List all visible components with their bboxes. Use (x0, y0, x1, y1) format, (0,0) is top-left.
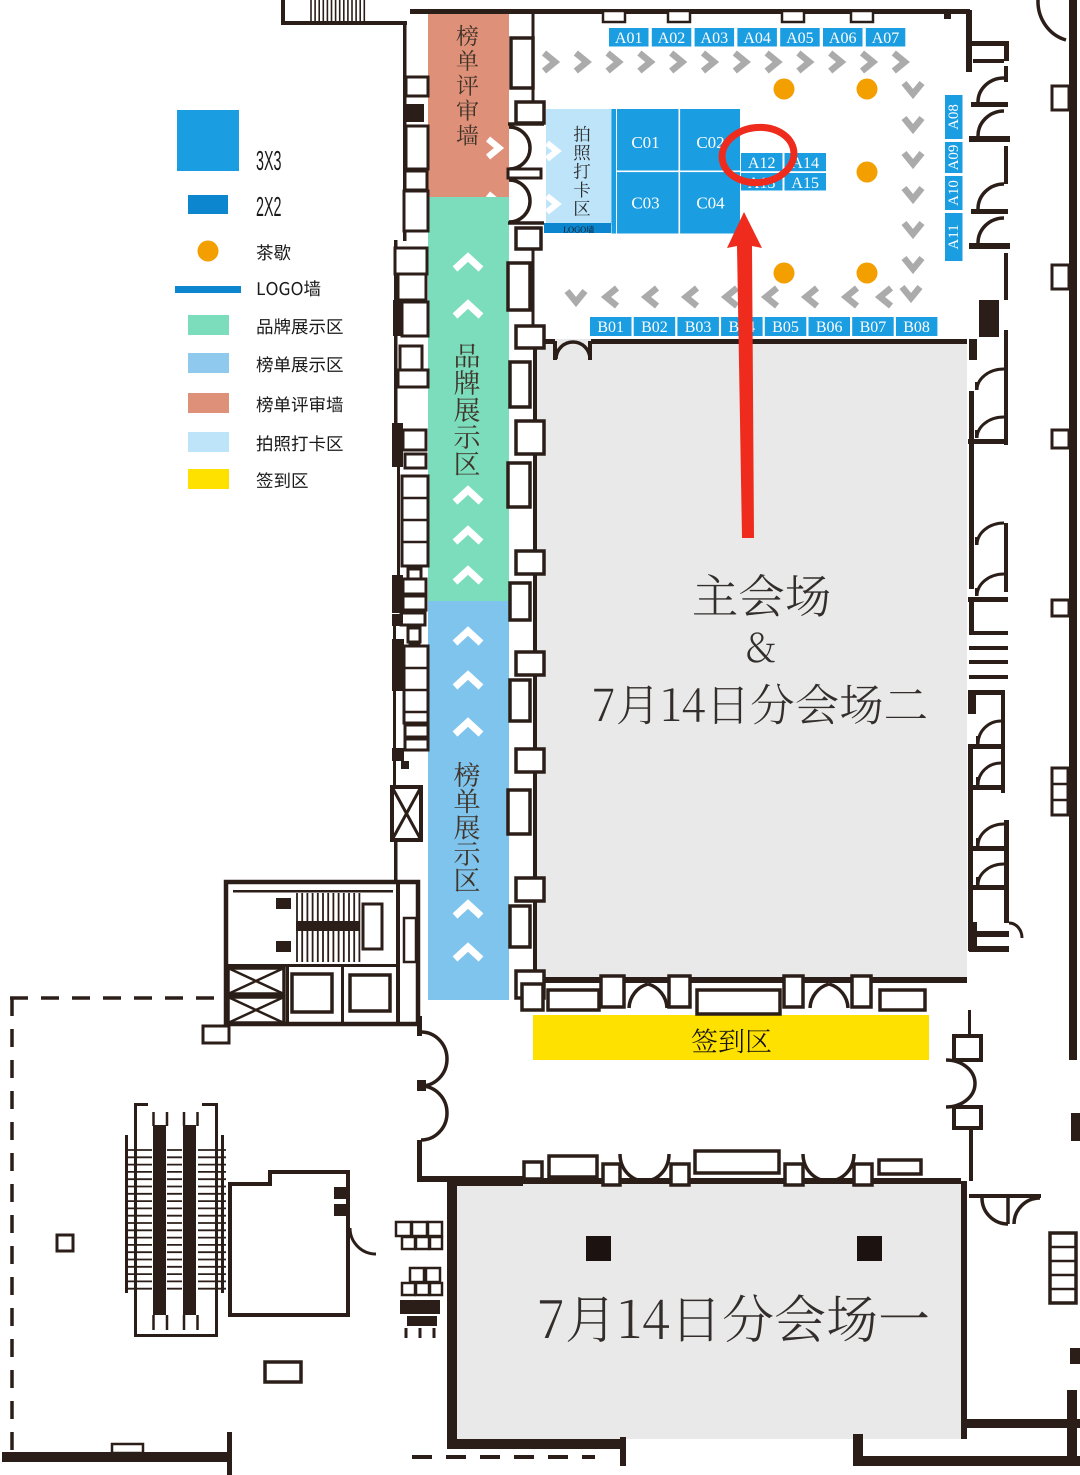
svg-text:A07: A07 (872, 30, 900, 47)
svg-text:B07: B07 (860, 319, 887, 336)
svg-text:3X3: 3X3 (256, 145, 281, 176)
svg-text:A05: A05 (786, 30, 814, 47)
svg-text:A09: A09 (946, 145, 962, 171)
svg-text:B03: B03 (685, 319, 712, 336)
svg-text:C04: C04 (696, 194, 725, 213)
svg-text:2X2: 2X2 (256, 191, 281, 222)
svg-text:A11: A11 (946, 224, 962, 249)
svg-text:A15: A15 (791, 175, 819, 192)
svg-text:A10: A10 (946, 180, 962, 206)
svg-text:A12: A12 (748, 155, 776, 172)
svg-text:B06: B06 (816, 319, 843, 336)
svg-text:A02: A02 (658, 30, 686, 47)
svg-text:C01: C01 (631, 133, 659, 152)
svg-text:A01: A01 (615, 30, 643, 47)
svg-text:A06: A06 (829, 30, 857, 47)
svg-text:B08: B08 (903, 319, 930, 336)
svg-text:B05: B05 (772, 319, 799, 336)
svg-text:B01: B01 (597, 319, 624, 336)
svg-text:A08: A08 (946, 104, 962, 130)
svg-text:C03: C03 (631, 194, 659, 213)
svg-text:A04: A04 (743, 30, 771, 47)
svg-text:A03: A03 (701, 30, 729, 47)
svg-text:B02: B02 (641, 319, 668, 336)
